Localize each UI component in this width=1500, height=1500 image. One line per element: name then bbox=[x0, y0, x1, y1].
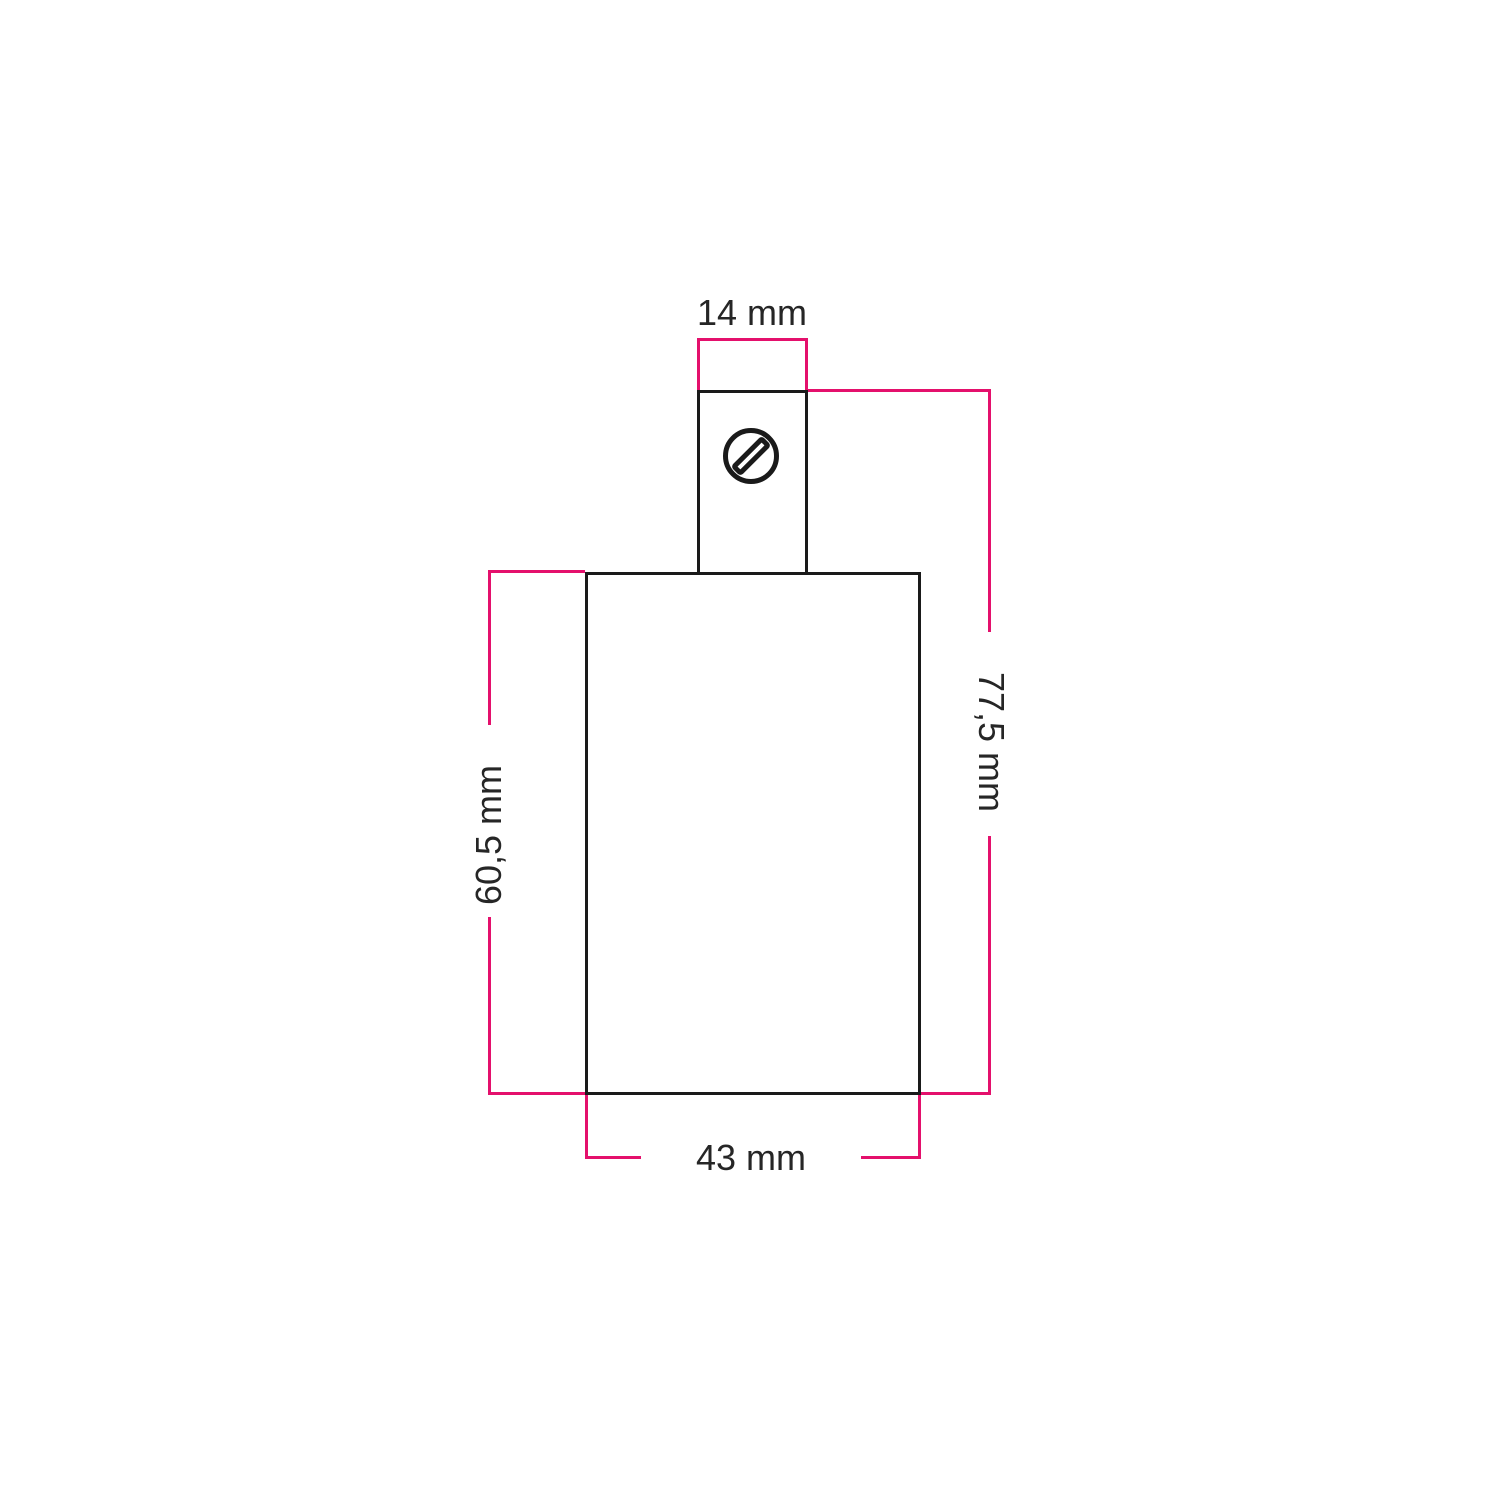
dimension-label-body-height: 60,5 mm bbox=[469, 725, 509, 945]
dimension-line bbox=[697, 338, 808, 341]
drawing-canvas: 14 mm 77,5 mm 60,5 mm 43 mm bbox=[0, 0, 1500, 1500]
dimension-line bbox=[585, 1095, 588, 1159]
screw-head-icon bbox=[723, 428, 779, 484]
dimension-line bbox=[807, 389, 991, 392]
dimension-line bbox=[488, 1092, 585, 1095]
dimension-label-body-width: 43 mm bbox=[641, 1138, 861, 1178]
dimension-line bbox=[488, 917, 491, 1095]
dimension-line bbox=[988, 836, 991, 1095]
dimension-label-clamp-width: 14 mm bbox=[642, 293, 862, 333]
dimension-line bbox=[805, 338, 808, 392]
dimension-line bbox=[988, 389, 991, 651]
dimension-line bbox=[918, 1095, 921, 1159]
lamp-holder-body-outline bbox=[585, 572, 921, 1095]
dimension-line bbox=[697, 338, 700, 392]
dimension-line bbox=[921, 1092, 991, 1095]
dimension-line bbox=[488, 570, 585, 573]
screw-slot-icon bbox=[730, 435, 771, 476]
dimension-label-overall-height: 77,5 mm bbox=[971, 632, 1011, 852]
